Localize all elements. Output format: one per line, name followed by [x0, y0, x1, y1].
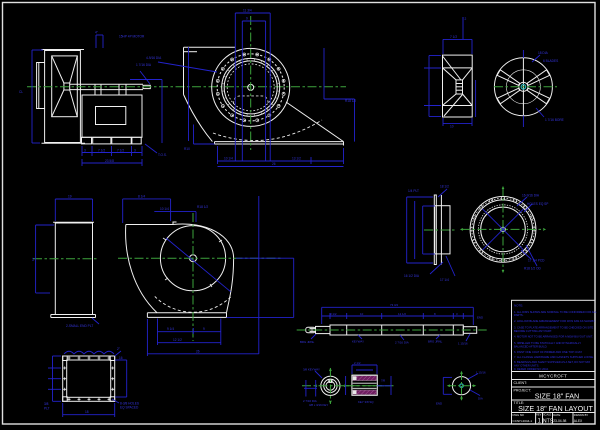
svg-text:13 1/2: 13 1/2: [292, 157, 301, 161]
svg-text:4. MOTOR NOT TO BE ARRANGED FO: 4. MOTOR NOT TO BE ARRANGED FOR A NEW BU…: [514, 335, 593, 339]
svg-text:3/8: 3/8: [44, 402, 49, 406]
svg-text:9: 9: [246, 17, 248, 21]
svg-text:3: 3: [134, 149, 136, 153]
svg-text:18 DIA: 18 DIA: [538, 51, 549, 55]
svg-text:7. ALL FLANGE HARDWARE AND GAS: 7. ALL FLANGE HARDWARE AND GASKETS SUPPL…: [514, 355, 594, 359]
svg-text:26: 26: [196, 349, 200, 353]
svg-text:17 1/4: 17 1/4: [440, 278, 449, 282]
svg-text:NTS: NTS: [543, 418, 554, 424]
svg-text:MCYCROFT: MCYCROFT: [539, 374, 567, 379]
svg-text:ALEX: ALEX: [574, 419, 583, 423]
svg-text:7/8: 7/8: [381, 379, 385, 383]
svg-text:17 1/4 PCD: 17 1/4 PCD: [528, 259, 545, 263]
svg-text:3: 3: [84, 149, 86, 153]
svg-text:1 7/16 DIA: 1 7/16 DIA: [136, 63, 152, 67]
svg-text:SCALE: SCALE: [543, 414, 552, 417]
svg-text:1 15/16: 1 15/16: [476, 371, 486, 375]
svg-text:T.O.S.: T.O.S.: [158, 153, 167, 157]
svg-text:2 7/16 DIA: 2 7/16 DIA: [395, 341, 409, 345]
svg-text:DATE:: DATE:: [553, 413, 561, 417]
svg-text:R10: R10: [184, 147, 190, 151]
svg-text:BEFORE CUTTING ANY PART.: BEFORE CUTTING ANY PART.: [514, 329, 552, 333]
svg-text:DIA: DIA: [478, 397, 483, 401]
svg-text:ANY OTHER UNITS.: ANY OTHER UNITS.: [514, 363, 539, 367]
svg-text:10: 10: [450, 125, 454, 129]
svg-text:6 BLADES: 6 BLADES: [543, 59, 558, 63]
svg-text:BRG JRNL: BRG JRNL: [300, 340, 315, 344]
svg-text:12 1/2: 12 1/2: [398, 312, 406, 316]
svg-text:3/8 x 3/16 KEY: 3/8 x 3/16 KEY: [309, 403, 328, 407]
svg-text:KEYWAY: KEYWAY: [352, 340, 364, 344]
svg-text:19: 19: [31, 257, 35, 261]
svg-text:KEY 3/8 SQ: KEY 3/8 SQ: [358, 400, 374, 404]
svg-text:PARTS.: PARTS.: [514, 313, 524, 317]
svg-text:BALANCED AFTER BUILD.: BALANCED AFTER BUILD.: [514, 344, 548, 348]
svg-text:CLIENT:: CLIENT:: [514, 381, 528, 385]
svg-text:1. ALL DIMS SHOWN ARE NOMINAL: 1. ALL DIMS SHOWN ARE NOMINAL TO BE CONF…: [514, 310, 597, 314]
svg-text:8 1/4: 8 1/4: [138, 194, 145, 198]
svg-text:CL: CL: [19, 90, 23, 94]
svg-text:23 5/8: 23 5/8: [105, 159, 114, 163]
svg-text:15HP 4P MOTOR: 15HP 4P MOTOR: [119, 35, 145, 39]
svg-text:18: 18: [85, 410, 89, 414]
svg-text:1 7/16 BORE: 1 7/16 BORE: [545, 118, 564, 122]
svg-text:1 15/16: 1 15/16: [458, 342, 468, 346]
svg-text:7 1/2: 7 1/2: [117, 149, 124, 153]
svg-text:R18 1/2 OD: R18 1/2 OD: [524, 267, 542, 271]
svg-text:2-SMALL END PLT: 2-SMALL END PLT: [66, 324, 93, 328]
svg-text:11 3/4: 11 3/4: [243, 9, 252, 13]
svg-text:BRG JRNL: BRG JRNL: [428, 340, 443, 344]
svg-text:16 1/2 DIA: 16 1/2 DIA: [404, 274, 420, 278]
svg-text:1/4 PLT: 1/4 PLT: [408, 189, 419, 193]
svg-text:2 1/2: 2 1/2: [354, 361, 361, 365]
svg-text:REV: REV: [536, 414, 541, 417]
svg-text:7 1/2: 7 1/2: [450, 35, 457, 39]
svg-text:73 3/4: 73 3/4: [390, 303, 398, 307]
svg-text:END: END: [477, 316, 483, 320]
svg-text:9: 9: [203, 327, 205, 331]
svg-text:12 1/2: 12 1/2: [173, 338, 182, 342]
svg-text:10: 10: [360, 312, 364, 316]
svg-text:6. PAINT ONE COAT OF PRIMER AN: 6. PAINT ONE COAT OF PRIMER AND ONE TOP …: [514, 350, 583, 354]
svg-text:R18 1/2: R18 1/2: [197, 205, 208, 209]
svg-text:2. HOLLOW BLADE ARRANGEMENT FO: 2. HOLLOW BLADE ARRANGEMENT FOR 18 IN FA…: [514, 319, 595, 323]
svg-text:NOTE:: NOTE:: [514, 304, 523, 308]
svg-text:CCNH-2044-1: CCNH-2044-1: [513, 419, 533, 423]
svg-text:16: 16: [119, 356, 123, 360]
svg-text:23-04-98: 23-04-98: [553, 419, 566, 423]
svg-text:4": 4": [95, 31, 98, 35]
svg-text:SIZE 18" FAN LAYOUT: SIZE 18" FAN LAYOUT: [518, 404, 593, 413]
svg-text:19: 19: [68, 195, 72, 199]
svg-text:SIZE 18" FAN: SIZE 18" FAN: [535, 391, 580, 400]
svg-text:R18 1/2: R18 1/2: [345, 99, 356, 103]
svg-text:PROJECT:: PROJECT:: [514, 388, 532, 392]
svg-text:2": 2": [117, 347, 120, 351]
svg-text:END: END: [436, 401, 442, 405]
svg-text:4-9/16 DIA: 4-9/16 DIA: [146, 56, 162, 60]
svg-text:3 1/2: 3 1/2: [330, 312, 337, 316]
svg-text:10 1/4: 10 1/4: [160, 207, 169, 211]
svg-text:DWG NO: DWG NO: [513, 413, 524, 417]
svg-text:10 1/4: 10 1/4: [224, 157, 233, 161]
svg-text:HOLES EQ SP: HOLES EQ SP: [527, 202, 548, 206]
svg-text:26: 26: [272, 162, 276, 166]
svg-text:9 1/4: 9 1/4: [167, 327, 174, 331]
svg-text:PLT: PLT: [44, 407, 50, 411]
svg-text:EQ SPACED: EQ SPACED: [120, 406, 139, 410]
svg-text:16-9/16 DIA: 16-9/16 DIA: [522, 194, 540, 198]
svg-text:7 1/2: 7 1/2: [98, 149, 105, 153]
svg-text:9. REFER ORDER NO 2044.: 9. REFER ORDER NO 2044.: [514, 367, 549, 371]
svg-text:DRAWN BY: DRAWN BY: [574, 413, 589, 417]
svg-text:2: 2: [465, 17, 467, 21]
svg-text:3/8 KEYWAY: 3/8 KEYWAY: [303, 368, 320, 372]
svg-text:18 1/2: 18 1/2: [440, 185, 449, 189]
